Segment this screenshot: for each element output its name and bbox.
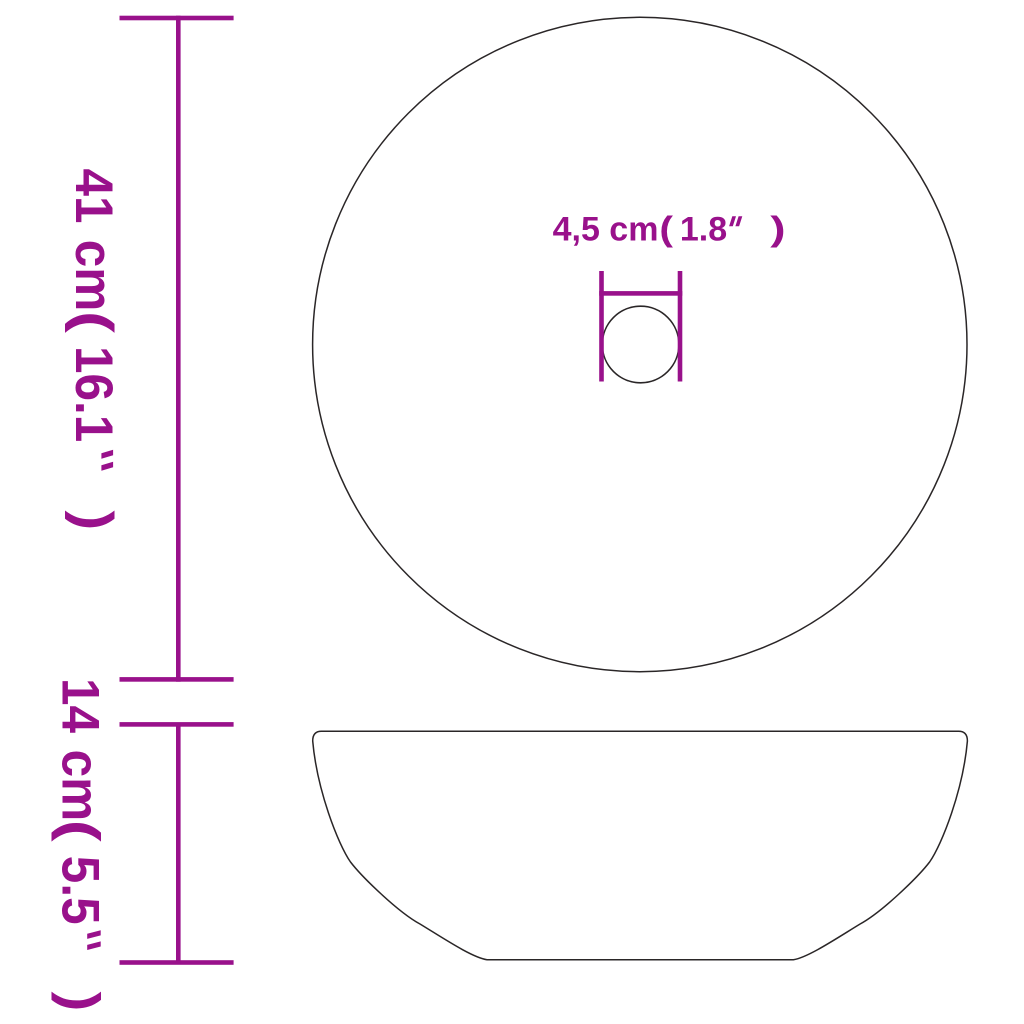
svg-text:16.1: 16.1 [65, 346, 124, 442]
svg-text:): ) [770, 210, 785, 249]
svg-text:(: ( [64, 311, 123, 333]
svg-text:(: ( [659, 210, 673, 248]
svg-text:4,5 cm: 4,5 cm [553, 211, 659, 249]
svg-text:14: 14 [51, 678, 110, 734]
svg-text:): ) [51, 992, 110, 1012]
svg-text:cm: cm [51, 750, 110, 822]
svg-text:5.5: 5.5 [51, 856, 110, 925]
svg-text:41: 41 [65, 169, 124, 224]
svg-text:): ) [65, 510, 124, 530]
svg-text:(: ( [51, 820, 110, 842]
svg-text:1.8: 1.8 [680, 211, 727, 249]
svg-text:cm: cm [65, 240, 124, 312]
